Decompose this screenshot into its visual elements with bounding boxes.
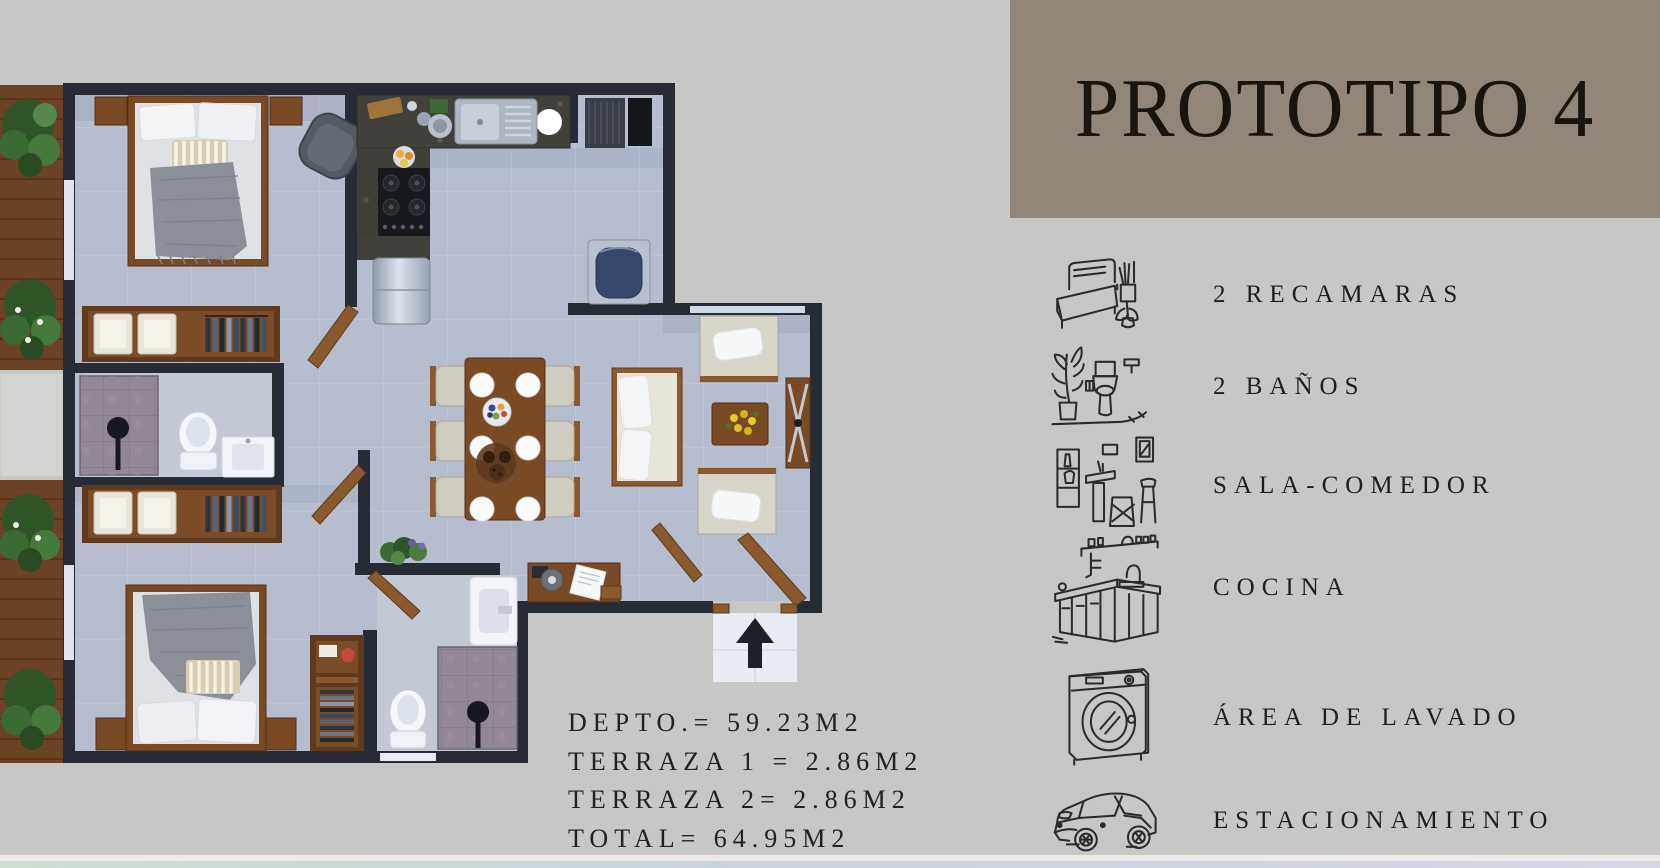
sofa	[612, 368, 682, 486]
wardrobe	[310, 635, 364, 751]
shower-2	[438, 647, 517, 749]
nightstand	[96, 718, 126, 750]
dining-table	[465, 358, 545, 521]
area-measurements: DEPTO.= 59.23M2 TERRAZA 1 = 2.86M2 TERRA…	[568, 704, 988, 858]
bedroom-2-bed	[126, 585, 266, 751]
kitchen-sink	[455, 99, 537, 144]
armchair	[700, 316, 778, 382]
kitchen-icon	[1050, 532, 1170, 644]
fridge	[373, 258, 430, 324]
washer-icon	[1050, 662, 1170, 767]
feature-item-banos: 2 BAÑOS	[1050, 345, 1570, 425]
measure-line: TOTAL= 64.95M2	[568, 820, 988, 859]
feature-label: SALA-COMEDOR	[1213, 472, 1496, 500]
feature-item-sala-comedor: SALA-COMEDOR	[1050, 428, 1570, 538]
nightstand	[95, 97, 127, 125]
nightstand	[270, 97, 302, 125]
living-dining-icon	[1050, 428, 1170, 538]
toilet-1	[179, 412, 217, 470]
nightstand	[266, 718, 296, 750]
stove	[378, 168, 430, 236]
car-icon	[1050, 782, 1170, 854]
feature-item-cocina: COCINA	[1050, 532, 1570, 644]
terrace-divider-panel	[0, 373, 63, 477]
measure-line: DEPTO.= 59.23M2	[568, 704, 988, 743]
side-table	[786, 378, 810, 468]
washing-machine	[588, 240, 650, 304]
desk	[528, 563, 621, 602]
feature-label: COCINA	[1213, 574, 1351, 602]
feature-label: 2 BAÑOS	[1213, 373, 1366, 401]
feature-label: ESTACIONAMIENTO	[1213, 807, 1554, 835]
page: { "title": "PROTOTIPO 4", "features": [ …	[0, 0, 1660, 868]
laundry-shelf	[585, 98, 652, 148]
feature-item-estacionamiento: ESTACIONAMIENTO	[1050, 782, 1570, 854]
coffee-table	[712, 403, 768, 445]
sink-2	[470, 577, 517, 645]
feature-item-recamaras: 2 RECAMARAS	[1050, 253, 1570, 333]
feature-label: 2 RECAMARAS	[1213, 281, 1464, 309]
toilet-2	[390, 690, 426, 748]
closet-1	[82, 306, 280, 362]
bed-icon	[1050, 253, 1170, 333]
measure-line: TERRAZA 2= 2.86M2	[568, 781, 988, 820]
feature-item-area-lavado: ÁREA DE LAVADO	[1050, 662, 1570, 767]
feature-label: ÁREA DE LAVADO	[1213, 704, 1523, 732]
shower-1	[80, 376, 158, 475]
bottom-edge-strip	[0, 861, 1660, 868]
armchair	[698, 468, 776, 534]
sink-1	[222, 437, 274, 477]
measure-line: TERRAZA 1 = 2.86M2	[568, 743, 988, 782]
bedroom-1-bed	[128, 96, 268, 266]
closet-2	[82, 485, 282, 543]
title-banner: PROTOTIPO 4	[1010, 0, 1660, 218]
toilet-icon	[1050, 345, 1170, 429]
page-title: PROTOTIPO 4	[1075, 62, 1596, 157]
